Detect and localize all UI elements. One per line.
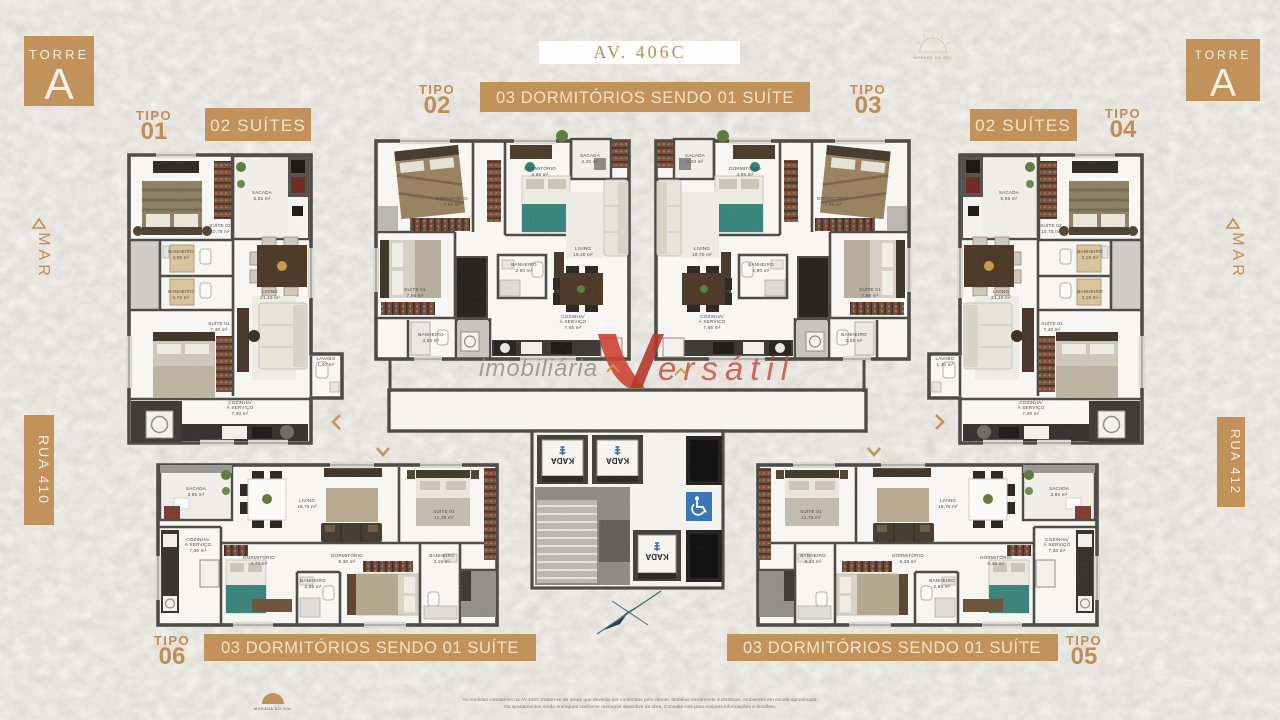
svg-text:TORRE: TORRE bbox=[1195, 48, 1252, 62]
svg-text:MORADA DO SOL: MORADA DO SOL bbox=[254, 707, 292, 711]
svg-text:03 DORMITÓRIOS SENDO 01 SUÍTE: 03 DORMITÓRIOS SENDO 01 SUÍTE bbox=[743, 638, 1041, 657]
svg-text:02 SUÍTES: 02 SUÍTES bbox=[210, 116, 306, 135]
svg-text:03 DORMITÓRIOS SENDO 01 SUÍTE: 03 DORMITÓRIOS SENDO 01 SUÍTE bbox=[496, 88, 794, 107]
svg-text:02 SUÍTES: 02 SUÍTES bbox=[975, 116, 1071, 135]
svg-text:MAR: MAR bbox=[1229, 232, 1246, 280]
svg-text:03: 03 bbox=[855, 92, 882, 119]
svg-text:05: 05 bbox=[1071, 643, 1098, 670]
svg-text:03 DORMITÓRIOS SENDO 01 SUÍTE: 03 DORMITÓRIOS SENDO 01 SUÍTE bbox=[221, 638, 519, 657]
svg-text:A: A bbox=[1210, 62, 1236, 105]
svg-text:02: 02 bbox=[424, 92, 451, 119]
svg-text:06: 06 bbox=[159, 643, 186, 670]
svg-text:ersátil: ersátil bbox=[658, 350, 795, 387]
svg-text:RUA 412: RUA 412 bbox=[1228, 429, 1243, 495]
svg-text:AV. 406C: AV. 406C bbox=[593, 42, 686, 62]
svg-text:04: 04 bbox=[1110, 116, 1137, 143]
svg-text:MAR: MAR bbox=[35, 232, 52, 280]
svg-text:As medidas constantes na AV.40: As medidas constantes na AV.406C tratam-… bbox=[462, 697, 817, 703]
svg-text:MORADA DO SOL: MORADA DO SOL bbox=[914, 56, 953, 60]
svg-text:imobiliária: imobiliária bbox=[479, 355, 598, 382]
svg-text:A: A bbox=[44, 60, 74, 109]
svg-text:RUA 410: RUA 410 bbox=[36, 435, 52, 505]
svg-text:Os apartamentos serão entregue: Os apartamentos serão entregues conforme… bbox=[504, 704, 776, 710]
svg-text:01: 01 bbox=[141, 118, 168, 145]
